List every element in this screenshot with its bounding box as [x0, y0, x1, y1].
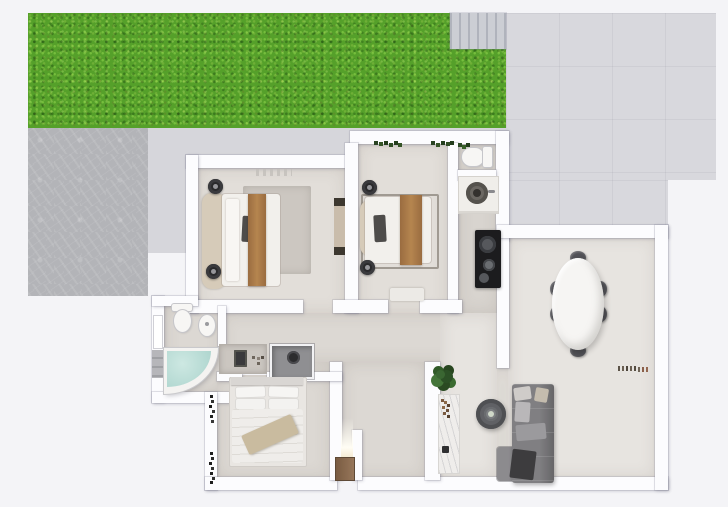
garden-lawn [28, 13, 506, 128]
vanity-faucet-set [234, 350, 247, 367]
bathroom-bidet-drain [205, 322, 209, 326]
bedroom2-hanging-plant-left [374, 141, 378, 145]
terrace-lower [506, 180, 668, 231]
front-door [336, 458, 354, 480]
cooktop-burner-small [479, 273, 489, 283]
bedroom3-pillow-1 [236, 386, 265, 397]
stone-patio [28, 128, 148, 296]
bedroom2-nightstand-bottom [360, 260, 375, 275]
wall-bottom-a [205, 477, 337, 490]
bedroom1-nightstand-bottom [206, 264, 221, 279]
bedroom1-nightstand-top [208, 179, 223, 194]
coffee-table-centerpiece [488, 411, 494, 417]
bathroom-window [154, 316, 162, 348]
console-table [438, 394, 460, 474]
sofa-pillow-1 [513, 386, 532, 401]
cooktop-burner-mid [483, 259, 495, 271]
bedroom1-wall-decor [256, 169, 292, 176]
wall-bathroom-corridor-stub [218, 306, 226, 346]
bedroom3-pillow-2 [269, 386, 298, 397]
wall-bedroom1-left [186, 155, 198, 313]
wc-toilet-bowl [462, 148, 484, 166]
front-door-light-glow [341, 418, 353, 460]
wall-lower-left [205, 392, 217, 490]
dining-ledge-decor [618, 366, 620, 371]
wall-corridor-north-c [420, 300, 462, 313]
bedroom2-door-mat [390, 288, 424, 301]
wc-toilet-tank [483, 147, 492, 167]
console-decor-item [442, 446, 449, 453]
bedroom3-wall-plant-lower [210, 452, 213, 455]
bedroom2-hanging-plant-right [431, 141, 435, 145]
wall-right [655, 225, 668, 490]
dining-table [552, 258, 604, 350]
bedroom3-headboard [231, 377, 303, 385]
bedroom3-pillow-3 [236, 399, 265, 409]
wall-corridor-north-a [186, 300, 303, 313]
wall-bed1-bed2-divider [345, 143, 358, 313]
wall-bathroom-left [152, 296, 164, 402]
kitchen-sink-drain [473, 189, 481, 197]
wall-dining-top [497, 225, 668, 238]
shower-head [287, 351, 300, 364]
bedroom3-pillow-4 [269, 399, 298, 409]
wc-corner-plant [458, 143, 462, 147]
bathroom-toilet-bowl [174, 310, 191, 332]
kitchen-faucet [488, 190, 495, 193]
sofa-mid-blanket [515, 423, 546, 442]
bedroom1-bed-runner [248, 194, 266, 286]
console-decor-branch [441, 399, 444, 402]
bathtub-wall-shelf [152, 350, 163, 378]
living-plant [436, 370, 445, 379]
wall-corridor-north-b [333, 300, 388, 313]
bedroom3-wall-plant-upper [210, 395, 213, 398]
vanity-bottles [252, 356, 255, 359]
wall-bed2-kitchen-divider [448, 143, 458, 313]
wall-bedroom1-top [186, 155, 354, 168]
bedroom2-nightstand-top [362, 180, 377, 195]
sofa-pillow-3 [514, 402, 530, 423]
concrete-apron-left [148, 157, 188, 253]
bedroom2-bed-runner [400, 195, 422, 265]
terrace-upper [506, 13, 716, 180]
sofa-dark-throw [509, 449, 536, 481]
bedroom1-pillow-zone [226, 199, 239, 281]
bedroom2-dark-pillow [373, 215, 386, 243]
bedroom1-wall-dresser [334, 198, 345, 255]
cooktop-burner-large [479, 236, 496, 253]
floor-plan-canvas [0, 0, 728, 507]
sofa-pillow-2 [534, 387, 549, 403]
garden-stairs [450, 13, 506, 49]
